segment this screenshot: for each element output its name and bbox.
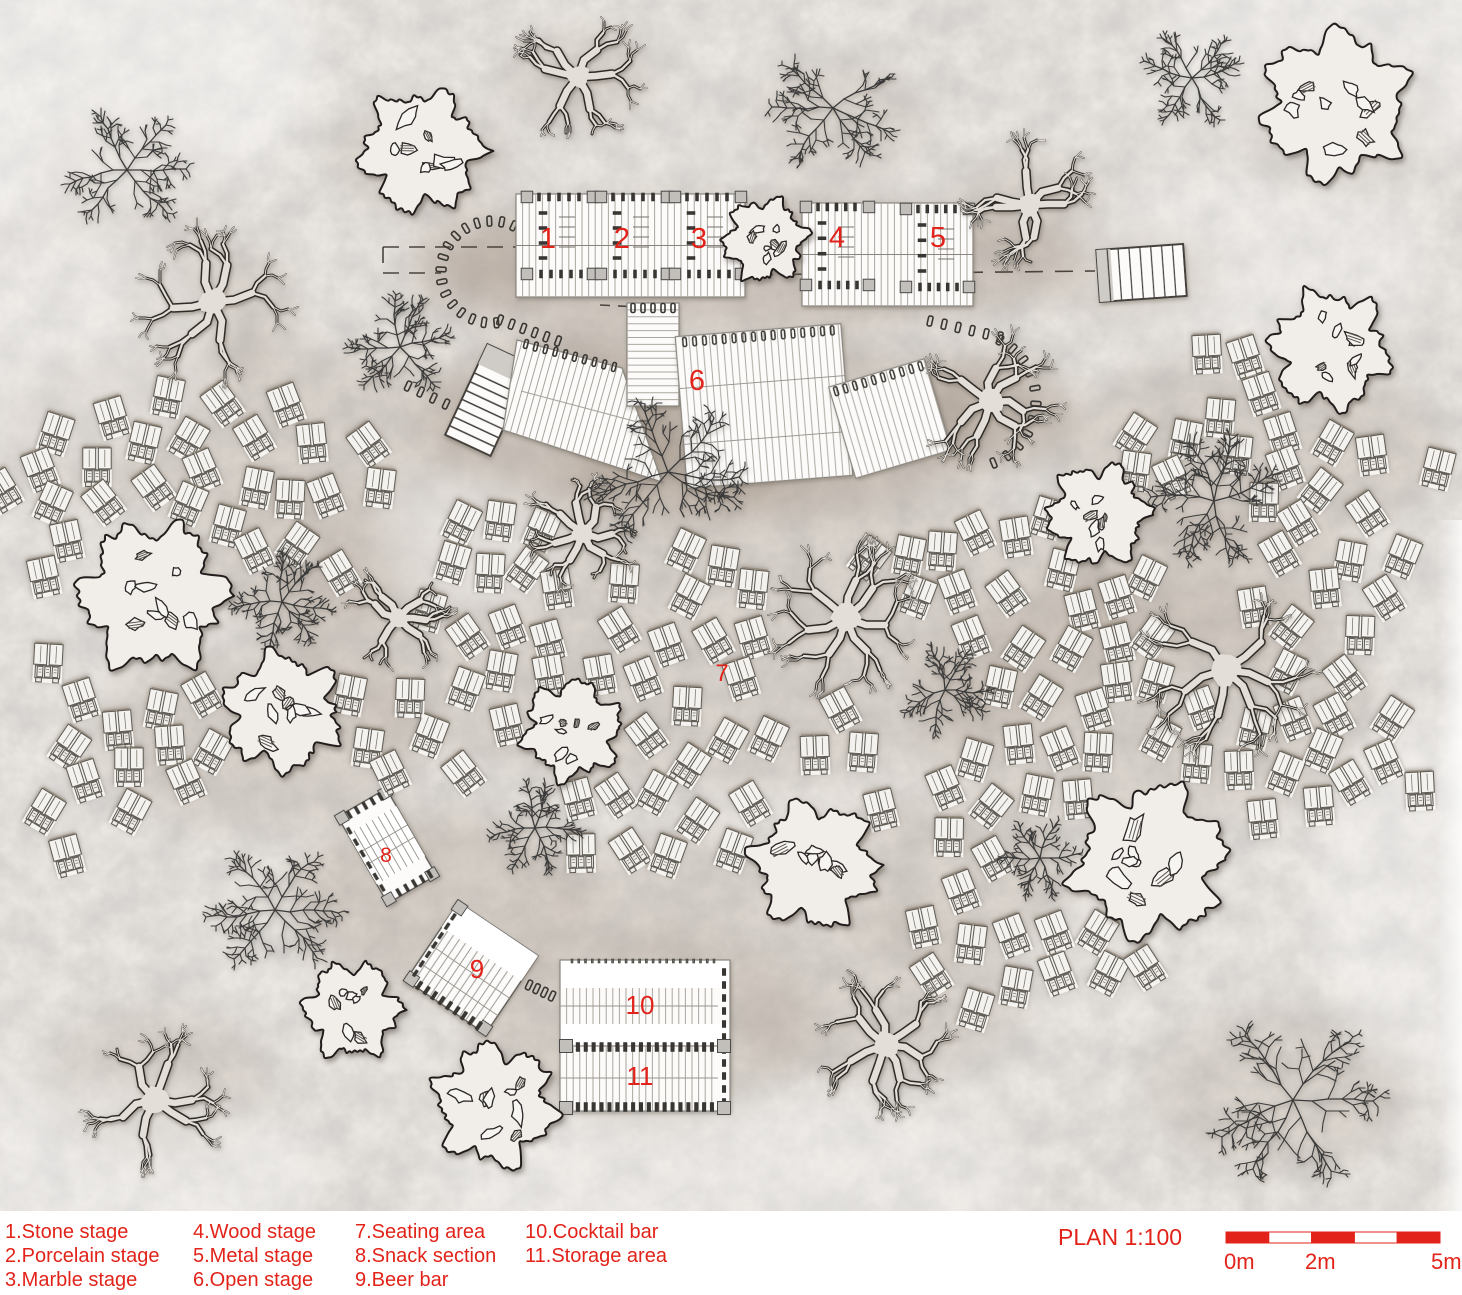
svg-text:5m: 5m xyxy=(1431,1249,1462,1274)
svg-text:2m: 2m xyxy=(1305,1249,1336,1274)
svg-text:5: 5 xyxy=(930,222,946,254)
svg-text:7.Seating area: 7.Seating area xyxy=(355,1221,486,1243)
svg-text:11.Storage area: 11.Storage area xyxy=(525,1245,668,1267)
svg-text:8: 8 xyxy=(380,844,392,867)
svg-text:3: 3 xyxy=(691,223,707,255)
svg-text:1: 1 xyxy=(540,223,556,255)
svg-text:6: 6 xyxy=(689,365,705,397)
svg-text:11: 11 xyxy=(627,1061,654,1091)
svg-text:6.Open stage: 6.Open stage xyxy=(193,1269,313,1291)
svg-text:3.Marble stage: 3.Marble stage xyxy=(5,1269,137,1291)
svg-text:5.Metal stage: 5.Metal stage xyxy=(193,1245,313,1267)
svg-text:4.Wood stage: 4.Wood stage xyxy=(193,1221,316,1243)
svg-text:1.Stone stage: 1.Stone stage xyxy=(5,1221,128,1243)
svg-text:4: 4 xyxy=(829,222,845,254)
svg-text:PLAN 1:100: PLAN 1:100 xyxy=(1058,1224,1182,1250)
svg-text:0m: 0m xyxy=(1224,1249,1255,1274)
svg-text:2: 2 xyxy=(614,223,630,255)
svg-text:2.Porcelain stage: 2.Porcelain stage xyxy=(5,1245,160,1267)
svg-text:7: 7 xyxy=(715,660,728,687)
svg-text:9.Beer bar: 9.Beer bar xyxy=(355,1269,449,1291)
svg-text:9: 9 xyxy=(470,954,484,984)
svg-text:8.Snack section: 8.Snack section xyxy=(355,1245,496,1267)
svg-text:10.Cocktail bar: 10.Cocktail bar xyxy=(525,1221,659,1243)
svg-text:10: 10 xyxy=(626,990,655,1020)
